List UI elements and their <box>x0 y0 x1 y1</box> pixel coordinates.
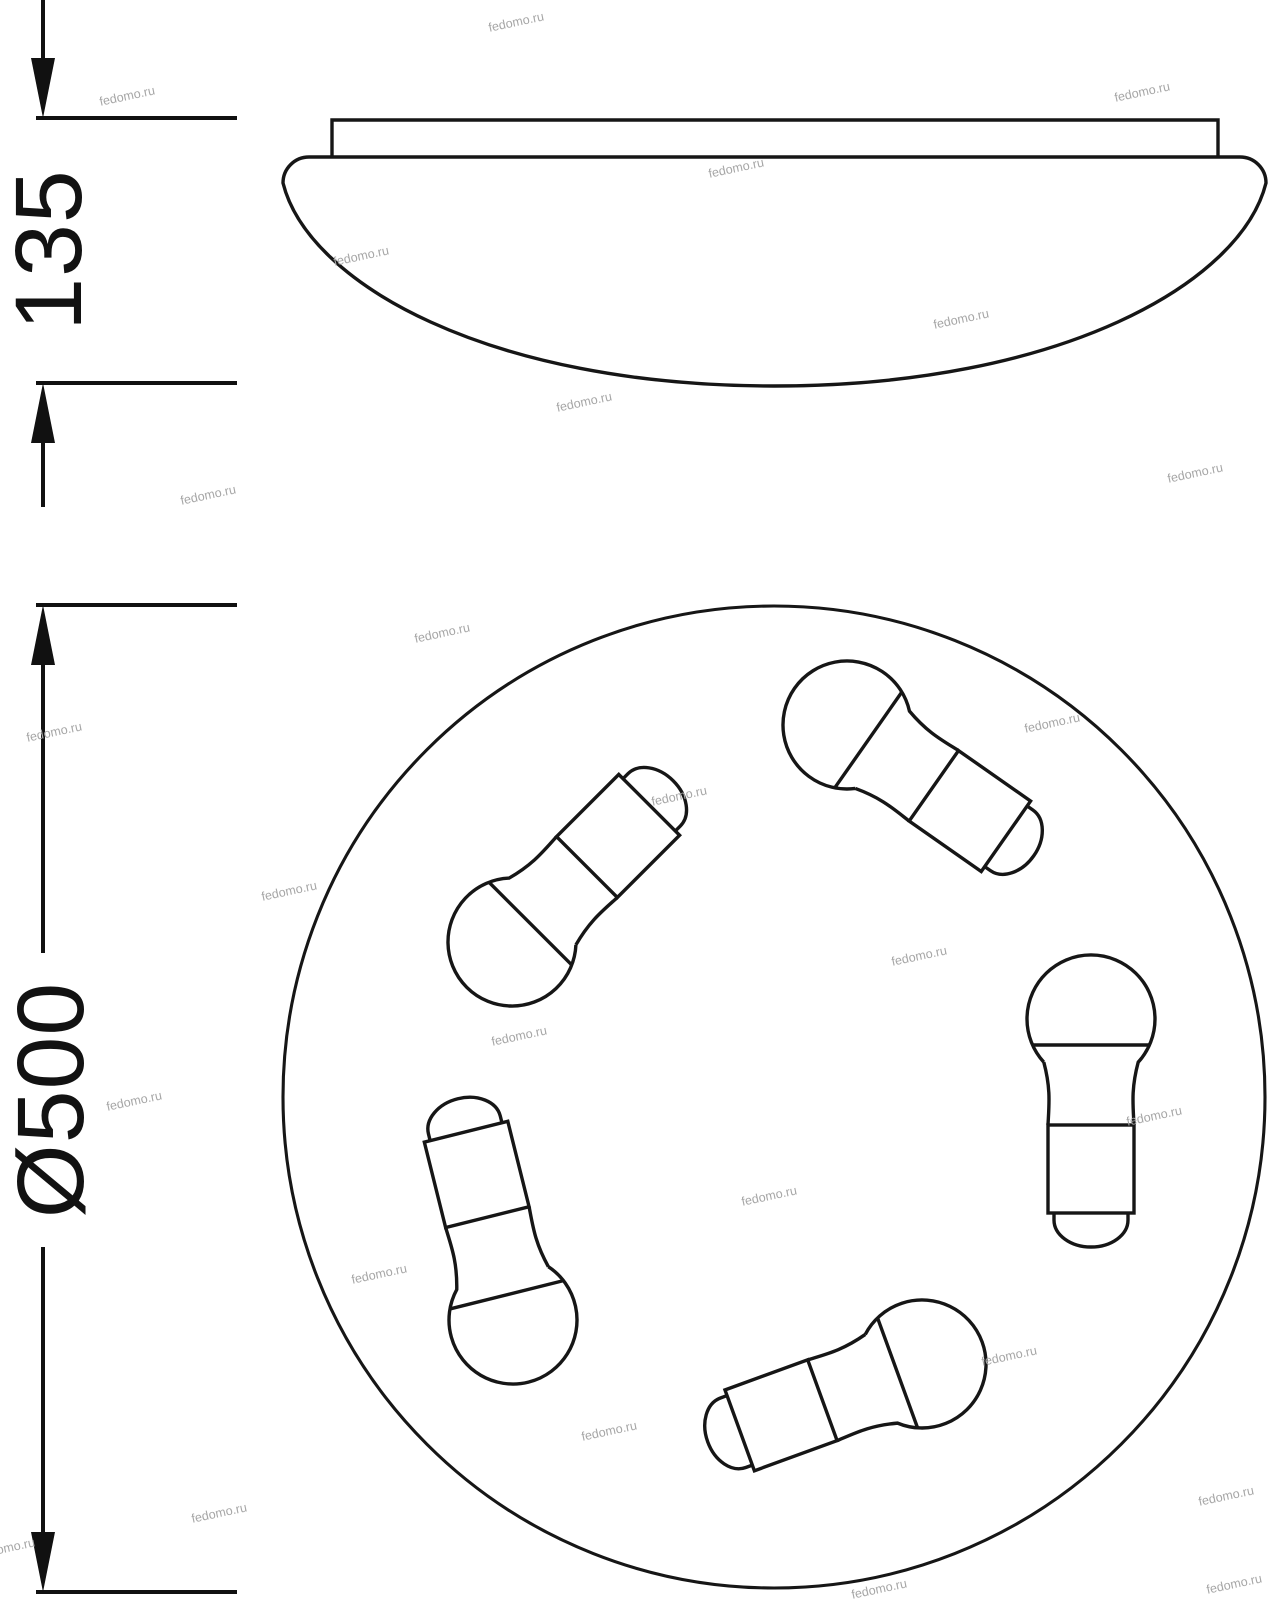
bulb-4 <box>396 1083 591 1397</box>
watermark-text: fedomo.ru <box>25 719 83 744</box>
mounting-plate <box>332 120 1218 157</box>
watermark-text: fedomo.ru <box>0 1535 36 1560</box>
diffuser-dome <box>283 157 1266 386</box>
watermark-text: fedomo.ru <box>490 1023 548 1048</box>
height-dimension-label: 135 <box>0 169 102 331</box>
watermark-text: fedomo.ru <box>1197 1483 1255 1508</box>
dimension-height: 135 <box>0 0 237 507</box>
watermark-text: fedomo.ru <box>190 1500 248 1525</box>
watermark-text: fedomo.ru <box>980 1343 1038 1368</box>
watermark-text: fedomo.ru <box>98 83 156 108</box>
watermark-text: fedomo.ru <box>487 9 545 34</box>
watermark-text: fedomo.ru <box>179 482 237 507</box>
watermark-text: fedomo.ru <box>890 943 948 968</box>
bulb-5 <box>421 736 718 1033</box>
bulb-2 <box>1027 955 1155 1247</box>
watermark-text: fedomo.ru <box>1166 460 1224 485</box>
watermark-text: fedomo.ru <box>555 389 613 414</box>
bulb-1 <box>758 636 1071 908</box>
watermark-text: fedomo.ru <box>740 1183 798 1208</box>
arrow-down-icon <box>31 58 55 118</box>
arrow-up-icon <box>31 605 55 665</box>
diameter-dimension-label: Ø500 <box>0 982 104 1218</box>
watermark-text: fedomo.ru <box>350 1261 408 1286</box>
watermark-layer: fedomo.rufedomo.rufedomo.rufedomo.rufedo… <box>0 9 1263 1600</box>
technical-drawing-page: 135 Ø500 fedomo.rufedomo.rufedomo.rufedo… <box>0 0 1269 1600</box>
watermark-text: fedomo.ru <box>260 878 318 903</box>
fixture-outline-circle <box>283 606 1265 1588</box>
lamp-dimension-drawing: 135 Ø500 fedomo.rufedomo.rufedomo.rufedo… <box>0 0 1269 1600</box>
watermark-text: fedomo.ru <box>1113 79 1171 104</box>
bulb-3 <box>686 1282 1004 1502</box>
side-view <box>283 120 1266 386</box>
arrow-down-icon <box>31 1532 55 1592</box>
top-view <box>283 606 1265 1588</box>
watermark-text: fedomo.ru <box>1205 1571 1263 1596</box>
arrow-up-icon <box>31 383 55 443</box>
watermark-text: fedomo.ru <box>580 1418 638 1443</box>
watermark-text: fedomo.ru <box>105 1088 163 1113</box>
watermark-text: fedomo.ru <box>707 155 765 180</box>
watermark-text: fedomo.ru <box>413 620 471 645</box>
watermark-text: fedomo.ru <box>1023 710 1081 735</box>
watermark-text: fedomo.ru <box>932 306 990 331</box>
watermark-text: fedomo.ru <box>332 243 390 268</box>
